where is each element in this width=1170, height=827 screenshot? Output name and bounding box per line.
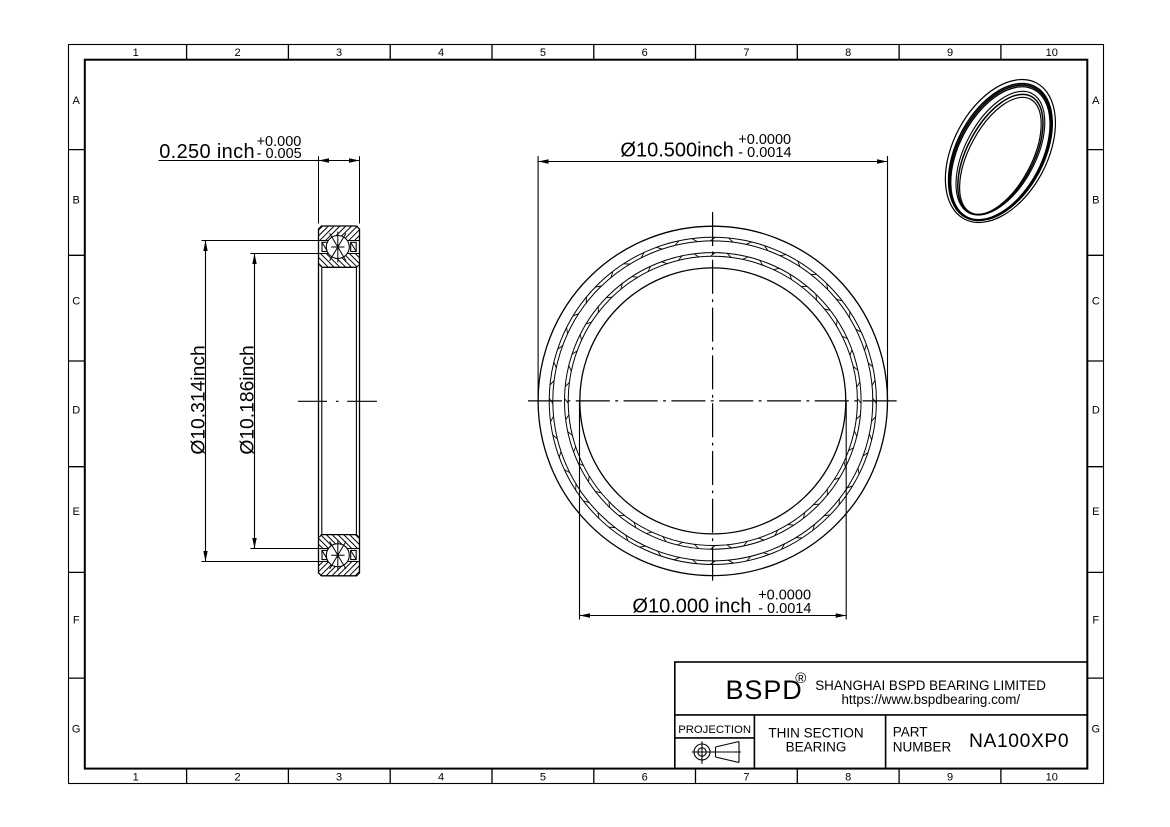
svg-text:NUMBER: NUMBER [893, 740, 952, 755]
svg-text:5: 5 [540, 47, 546, 59]
svg-text:1: 1 [133, 47, 139, 59]
svg-text:0.250 inch: 0.250 inch [159, 141, 255, 163]
svg-text:A: A [1092, 95, 1100, 107]
svg-text:10: 10 [1046, 771, 1058, 783]
svg-text:F: F [73, 615, 80, 627]
svg-text:3: 3 [336, 771, 342, 783]
svg-text:C: C [72, 296, 80, 308]
svg-text:Ø10.000 inch: Ø10.000 inch [632, 595, 751, 617]
svg-text:E: E [1092, 506, 1099, 518]
svg-text:1: 1 [133, 771, 139, 783]
svg-text:B: B [73, 194, 80, 206]
svg-text:- 0.005: - 0.005 [257, 146, 302, 162]
svg-text:Ø10.500inch: Ø10.500inch [620, 140, 733, 162]
svg-text:5: 5 [540, 771, 546, 783]
svg-text:C: C [1092, 296, 1100, 308]
svg-text:7: 7 [743, 47, 749, 59]
svg-text:2: 2 [234, 47, 240, 59]
svg-text:Ø10.314inch: Ø10.314inch [189, 345, 210, 454]
svg-text:F: F [1092, 615, 1099, 627]
svg-text:D: D [1092, 405, 1100, 417]
svg-text:D: D [72, 405, 80, 417]
svg-text:G: G [1092, 723, 1101, 735]
svg-text:NA100XP0: NA100XP0 [969, 731, 1069, 752]
svg-text:https://www.bspdbearing.com/: https://www.bspdbearing.com/ [841, 692, 1020, 707]
svg-text:Ø10.186inch: Ø10.186inch [238, 345, 259, 454]
svg-text:A: A [73, 95, 81, 107]
svg-text:G: G [72, 723, 81, 735]
svg-text:4: 4 [438, 771, 444, 783]
svg-text:9: 9 [947, 771, 953, 783]
svg-text:9: 9 [947, 47, 953, 59]
svg-text:4: 4 [438, 47, 444, 59]
svg-text:2: 2 [234, 771, 240, 783]
svg-text:SHANGHAI BSPD BEARING LIMITED: SHANGHAI BSPD BEARING LIMITED [815, 678, 1046, 693]
svg-text:3: 3 [336, 47, 342, 59]
svg-text:7: 7 [743, 771, 749, 783]
svg-text:- 0.0014: - 0.0014 [738, 145, 791, 161]
svg-text:8: 8 [845, 47, 851, 59]
svg-text:PROJECTION: PROJECTION [678, 724, 751, 736]
svg-text:E: E [73, 506, 80, 518]
svg-text:BEARING: BEARING [786, 740, 847, 755]
svg-text:®: ® [795, 670, 806, 687]
svg-text:10: 10 [1046, 47, 1058, 59]
svg-text:8: 8 [845, 771, 851, 783]
svg-text:THIN SECTION: THIN SECTION [768, 725, 863, 740]
svg-text:6: 6 [642, 47, 648, 59]
svg-text:B: B [1092, 194, 1099, 206]
svg-text:- 0.0014: - 0.0014 [758, 601, 811, 617]
svg-text:PART: PART [893, 725, 928, 740]
svg-text:6: 6 [642, 771, 648, 783]
svg-text:BSPD: BSPD [726, 675, 803, 705]
